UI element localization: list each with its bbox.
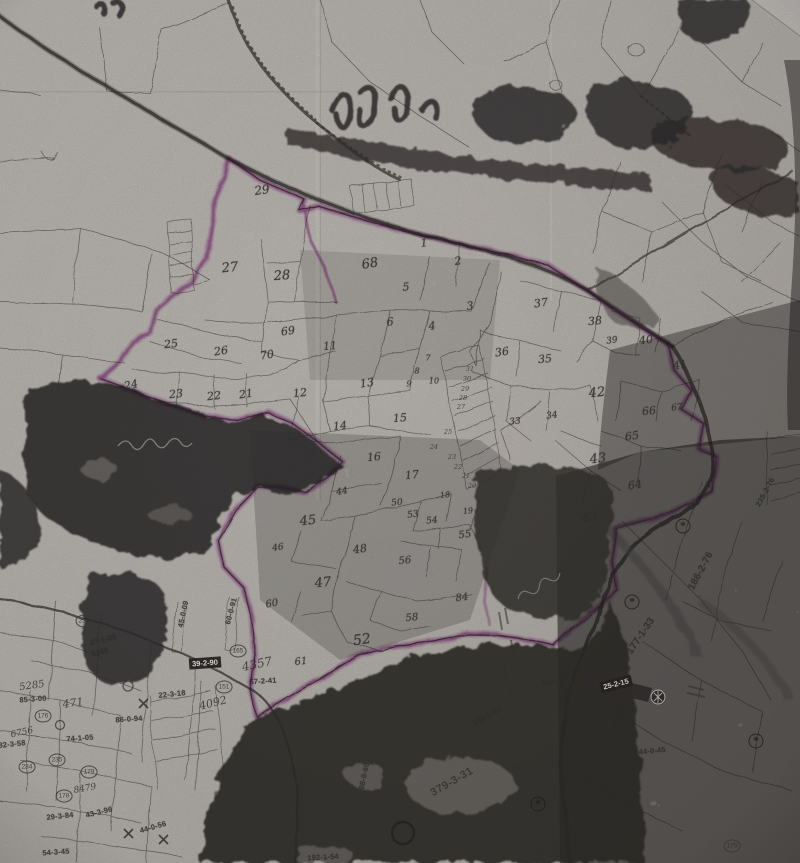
map-image (0, 0, 800, 863)
photo-vignette (0, 0, 800, 863)
scanned-cadastral-map-photo: 2927286812534669117891025267024232221121… (0, 0, 800, 863)
